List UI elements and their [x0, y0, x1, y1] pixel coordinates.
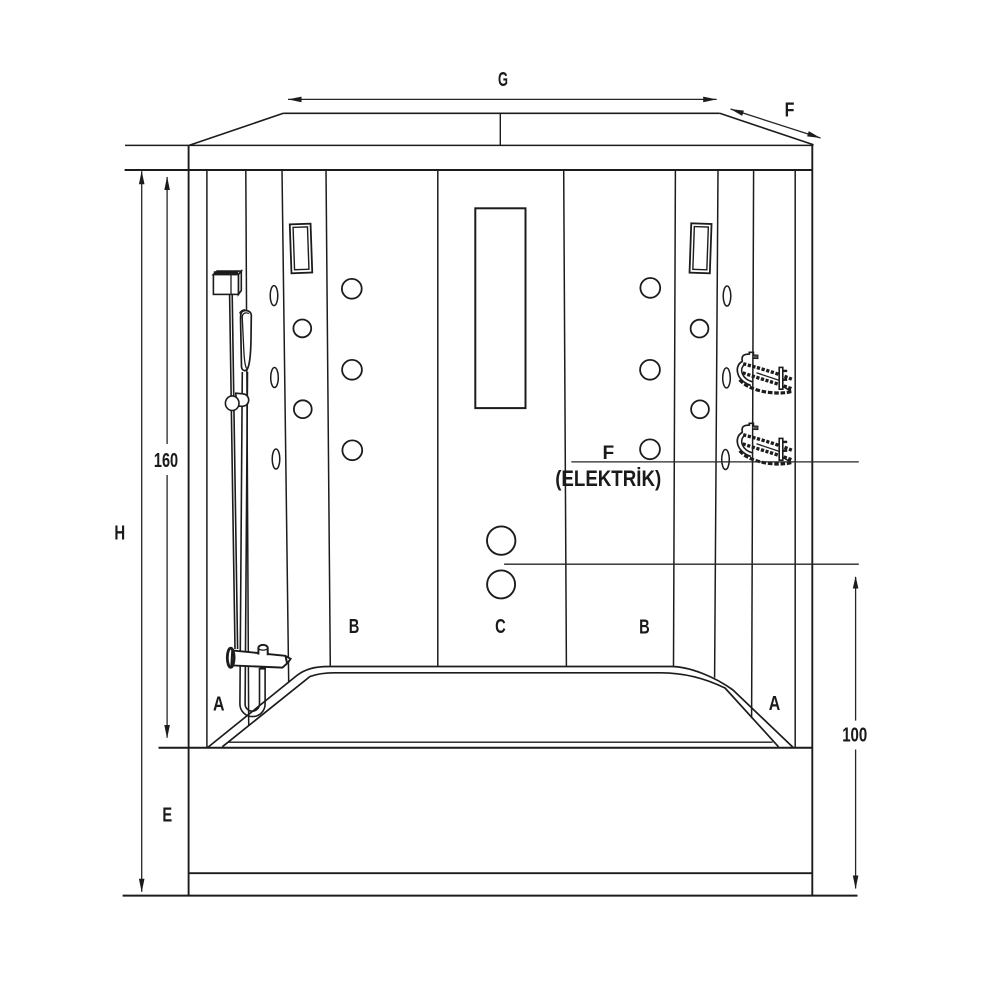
svg-text:F: F [602, 442, 614, 464]
svg-text:C: C [495, 616, 506, 638]
svg-text:G: G [498, 69, 508, 91]
svg-text:B: B [639, 617, 650, 639]
svg-text:160: 160 [154, 449, 178, 472]
svg-text:A: A [769, 693, 781, 715]
svg-text:F: F [785, 100, 795, 122]
svg-text:E: E [162, 805, 172, 827]
svg-text:100: 100 [842, 723, 867, 746]
svg-text:B: B [349, 616, 360, 638]
svg-text:A: A [213, 694, 225, 716]
svg-text:H: H [114, 523, 125, 545]
svg-text:(ELEKTRİK): (ELEKTRİK) [555, 466, 661, 491]
